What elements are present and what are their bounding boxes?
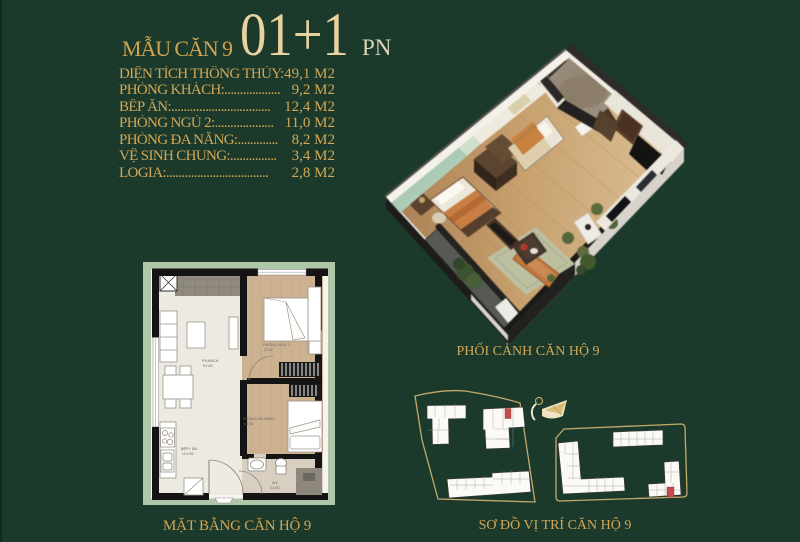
svg-text:PHÒNG ĐA NĂNG: PHÒNG ĐA NĂNG	[243, 416, 275, 421]
svg-text:11 M2: 11 M2	[264, 348, 273, 352]
svg-text:P.KHÁCH: P.KHÁCH	[202, 359, 219, 363]
svg-text:PHÒNG NGỦ 2: PHÒNG NGỦ 2	[263, 342, 290, 347]
svg-text:9.2 M2: 9.2 M2	[203, 364, 213, 368]
svg-text:BẾP+ ĂN: BẾP+ ĂN	[181, 446, 197, 451]
svg-text:WC: WC	[272, 481, 279, 485]
svg-text:8.2 M2: 8.2 M2	[244, 422, 254, 426]
svg-text:3.4 M2: 3.4 M2	[270, 486, 280, 490]
svg-text:12.4 M2: 12.4 M2	[182, 452, 194, 456]
